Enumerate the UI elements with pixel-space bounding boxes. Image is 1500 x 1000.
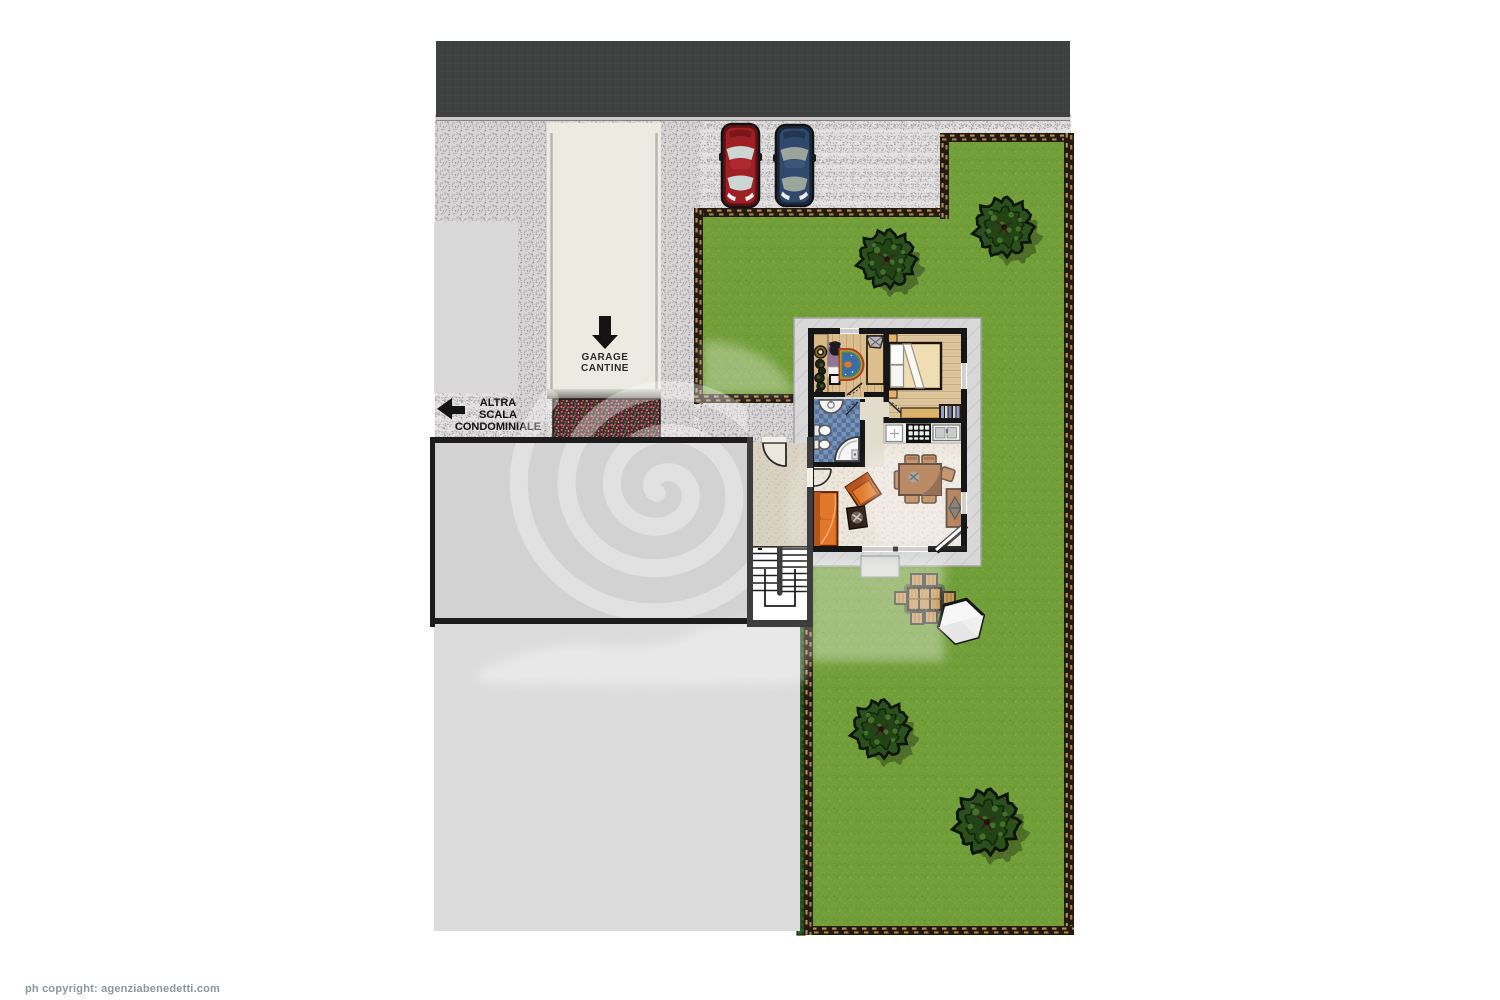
svg-text:GARAGE: GARAGE — [582, 352, 629, 363]
svg-text:ALTRA: ALTRA — [480, 397, 517, 409]
svg-text:CANTINE: CANTINE — [581, 363, 629, 374]
svg-text:ph copyright: agenziabenedetti: ph copyright: agenziabenedetti.com — [25, 983, 220, 995]
svg-text:SCALA: SCALA — [479, 409, 517, 421]
